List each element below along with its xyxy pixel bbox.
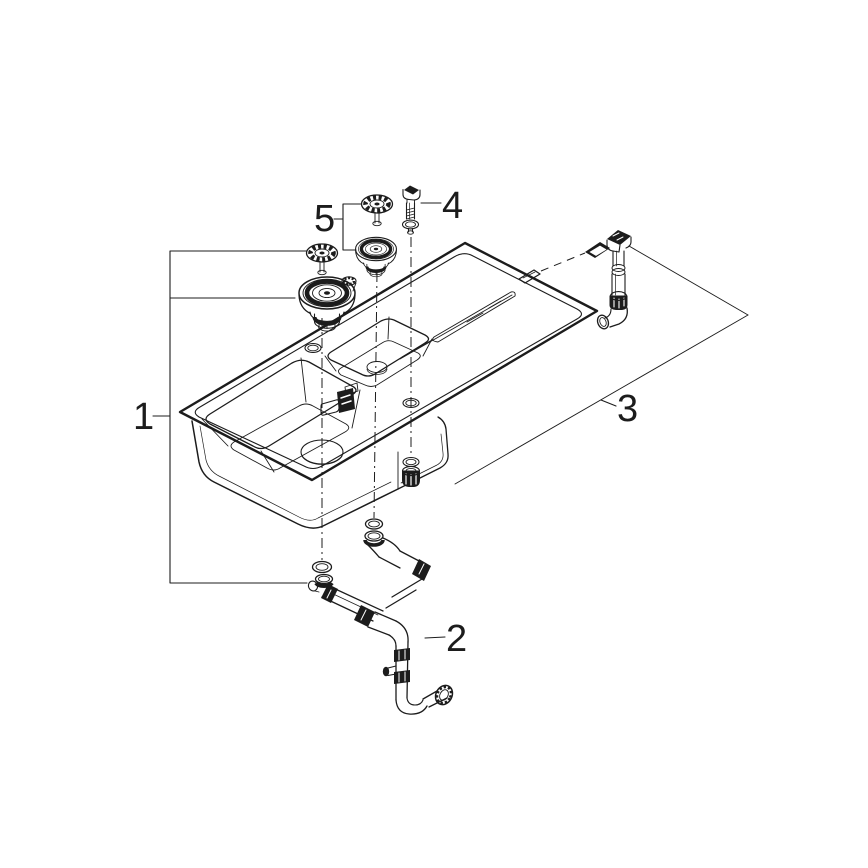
drain-trap: [307, 531, 456, 714]
callout-2: 2: [425, 618, 467, 660]
overflow-escutcheon: [585, 242, 610, 258]
strainer-basket-left: [299, 277, 356, 331]
overflow-alignment-dashes: [541, 253, 585, 271]
callout-1: 1: [133, 251, 307, 583]
o-ring-left: [313, 562, 332, 573]
drainboard: [400, 292, 515, 359]
screw-nut: [403, 466, 420, 486]
o-ring-middle: [366, 519, 383, 529]
callout-3: 3: [601, 388, 638, 430]
exploded-sink-diagram: 1 2 3 4 5: [0, 0, 868, 868]
callout-4: 4: [421, 185, 463, 227]
sink-basin: [180, 243, 597, 528]
mounting-screw: [403, 186, 421, 235]
small-drain-opening: [367, 362, 387, 373]
worktop-outline: [455, 246, 748, 484]
assembly-axis-lines: [322, 237, 411, 560]
small-bowl: [325, 317, 432, 387]
strainer-plug-left: [307, 244, 338, 275]
callout-2-label: 2: [446, 618, 467, 660]
callout-5-label: 5: [314, 198, 335, 240]
callout-5: 5: [314, 198, 361, 250]
parts-diagram-page: 1 2 3 4 5: [0, 0, 868, 868]
strainer-plug-top: [362, 195, 393, 226]
callout-4-label: 4: [442, 185, 463, 227]
callout-3-label: 3: [617, 388, 638, 430]
callout-1-label: 1: [133, 396, 154, 438]
strainer-basket-top: [356, 237, 397, 276]
tap-hole: [305, 344, 321, 353]
screw-washer: [403, 458, 419, 467]
